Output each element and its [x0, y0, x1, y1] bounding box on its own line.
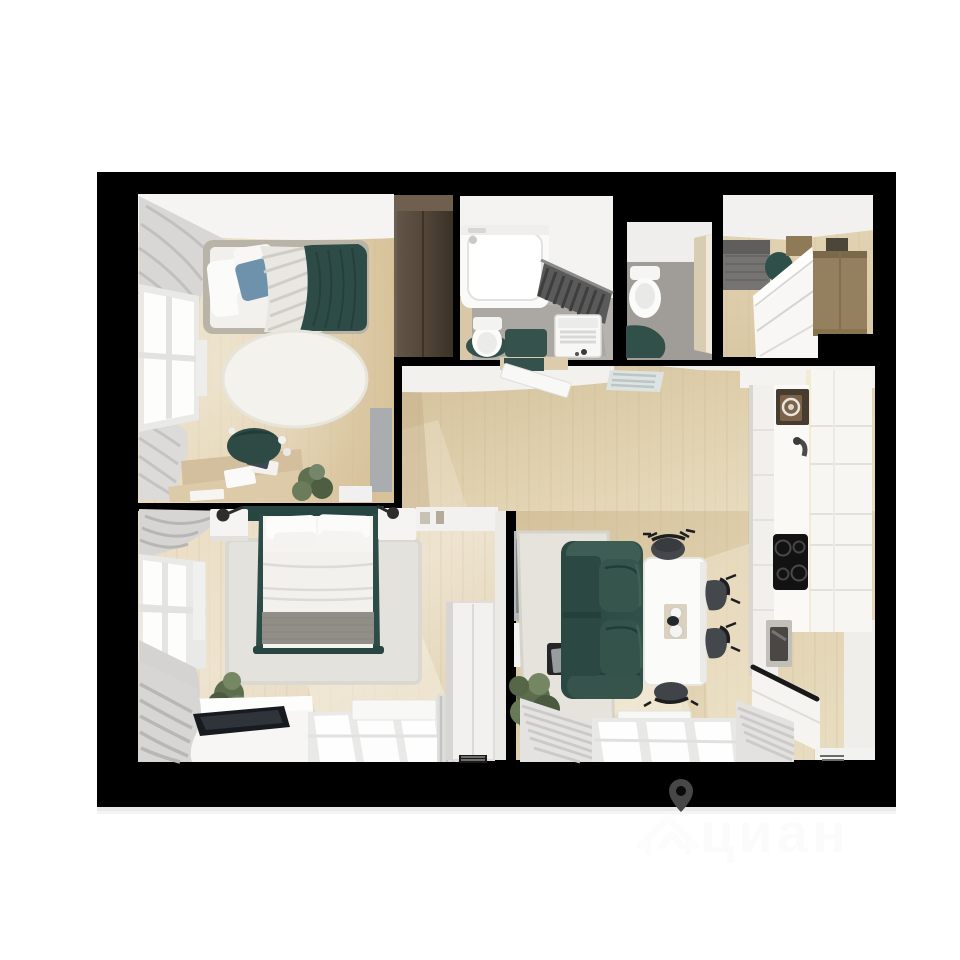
svg-text:циан: циан	[700, 801, 850, 864]
